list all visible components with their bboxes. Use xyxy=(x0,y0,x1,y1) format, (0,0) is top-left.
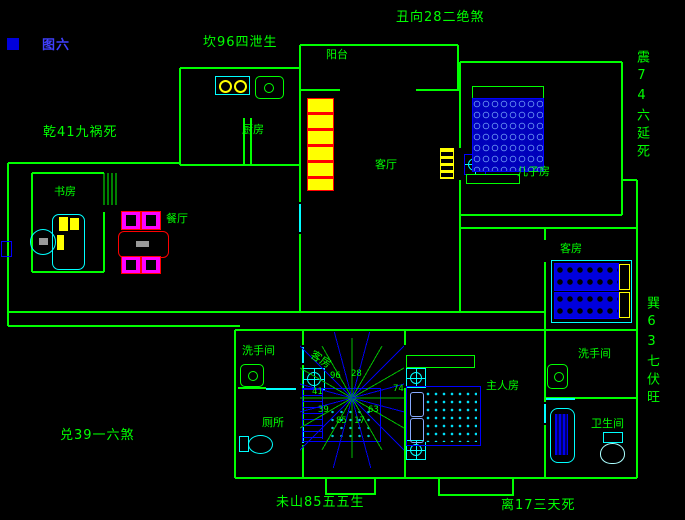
figure-title: 图六 xyxy=(42,34,70,53)
room-label-dining: 餐厅 xyxy=(166,210,188,226)
compass-ray xyxy=(331,398,352,477)
compass-number: 85 xyxy=(336,416,347,426)
room-label-living-room: 客厅 xyxy=(375,156,397,172)
compass-number: 63 xyxy=(368,405,379,415)
floor-plan: 9628746317853941 图六 丑向28二绝煞 坎96四泄生 乾41九祸… xyxy=(0,0,685,520)
label-southwest-direction: 未山85五五生 xyxy=(276,491,365,510)
compass-ray xyxy=(352,377,431,398)
label-top-direction: 丑向28二绝煞 xyxy=(396,6,485,25)
room-label-guest-room: 客房 xyxy=(560,240,582,256)
compass-number: 28 xyxy=(351,369,362,379)
room-label-kitchen: 厨房 xyxy=(242,121,264,137)
label-northwest-direction: 乾41九祸死 xyxy=(43,121,118,140)
compass-number: 17 xyxy=(354,416,365,426)
label-south-direction: 离17三天死 xyxy=(501,494,576,513)
label-southeast-direction: 巽63七伏旺 xyxy=(642,296,661,446)
room-label-son-room: 儿子房 xyxy=(517,163,550,179)
compass-number: 39 xyxy=(318,405,329,415)
compass-number: 74 xyxy=(393,384,404,394)
room-label-washroom-right: 洗手间 xyxy=(578,345,611,361)
room-label-bathroom-right: 卫生间 xyxy=(591,415,624,431)
compass-rose xyxy=(273,319,431,477)
room-label-washroom-left: 洗手间 xyxy=(242,342,275,358)
label-west-direction: 兑39一六煞 xyxy=(60,424,135,443)
compass-number: 96 xyxy=(330,371,341,381)
room-label-study: 书房 xyxy=(54,183,76,199)
compass-number: 41 xyxy=(312,387,323,397)
label-north-direction: 坎96四泄生 xyxy=(203,31,278,50)
room-label-toilet-left: 厕所 xyxy=(262,414,284,430)
room-label-balcony: 阳台 xyxy=(326,46,348,62)
label-east-direction: 震74六延死 xyxy=(632,50,651,200)
room-label-master-room: 主人房 xyxy=(486,377,519,393)
compass-ray xyxy=(352,319,373,398)
